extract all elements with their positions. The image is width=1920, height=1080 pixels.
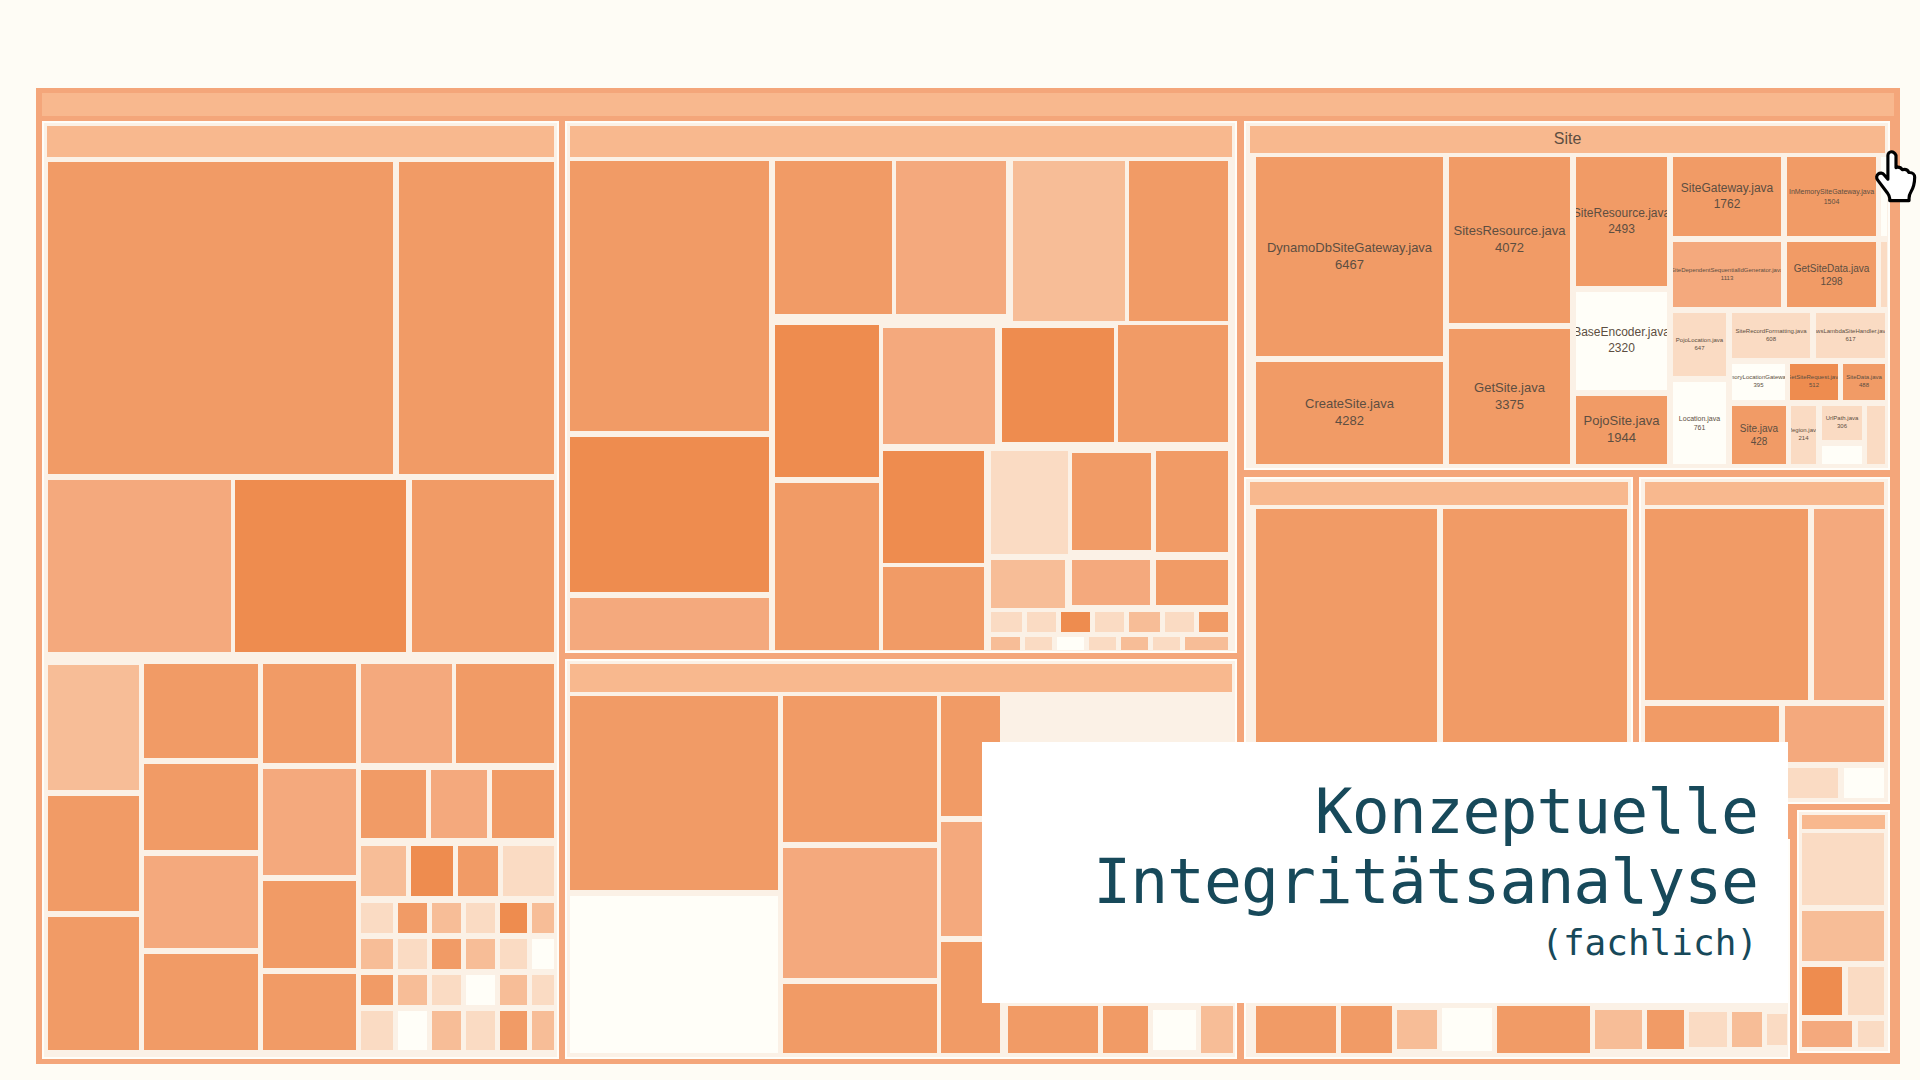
node-value: 617 (1845, 336, 1855, 344)
treemap-box[interactable] (1153, 637, 1180, 650)
treemap-box[interactable] (1103, 1006, 1148, 1053)
treemap-box[interactable] (1129, 161, 1228, 321)
treemap-box[interactable] (1647, 1010, 1684, 1049)
treemap-box[interactable] (1822, 446, 1862, 464)
treemap-box[interactable] (1008, 1006, 1098, 1053)
treemap-box[interactable] (775, 161, 892, 314)
node-value: 2320 (1608, 341, 1635, 357)
treemap-strip (1802, 815, 1885, 829)
treemap-box[interactable] (263, 769, 356, 875)
node-label: CreateSite.java (1305, 396, 1394, 413)
treemap-box[interactable] (492, 770, 554, 838)
treemap-box[interactable] (532, 975, 554, 1005)
treemap-box[interactable] (1802, 967, 1842, 1015)
treemap-box[interactable] (431, 770, 487, 838)
treemap-box[interactable] (1785, 768, 1838, 798)
treemap-box[interactable] (991, 451, 1068, 554)
treemap-box[interactable] (896, 161, 1006, 314)
treemap-box[interactable] (1844, 768, 1884, 798)
treemap-box[interactable] (1156, 451, 1228, 552)
node-dynamodbsitegateway-java[interactable]: DynamoDbSiteGateway.java6467 (1256, 157, 1443, 356)
node-label: UrlPath.java (1826, 415, 1859, 423)
treemap-box[interactable] (432, 1011, 461, 1050)
treemap-box[interactable] (991, 612, 1022, 632)
treemap-box[interactable] (1814, 509, 1884, 700)
node-label: PojoSite.java (1584, 413, 1660, 430)
treemap-box[interactable] (570, 696, 778, 890)
treemap-box[interactable] (775, 325, 879, 477)
node-siterecordformatting-java[interactable]: SiteRecordFormatting.java608 (1732, 313, 1810, 358)
treemap-box[interactable] (1397, 1010, 1437, 1049)
treemap-box[interactable] (783, 696, 937, 842)
treemap-box[interactable] (500, 1011, 527, 1050)
treemap-box[interactable] (399, 162, 554, 474)
node-value: 512 (1809, 382, 1819, 390)
treemap-box[interactable] (1057, 637, 1084, 650)
treemap-box[interactable] (144, 856, 258, 948)
treemap-box[interactable] (432, 939, 461, 969)
node-value: 214 (1798, 435, 1808, 443)
treemap-box[interactable] (532, 903, 554, 933)
treemap-box[interactable] (1027, 612, 1056, 632)
treemap-box[interactable] (1341, 1006, 1392, 1053)
node-getsitedata-java[interactable]: GetSiteData.java1298 (1787, 242, 1876, 307)
node-label: SitesResource.java (1454, 223, 1566, 240)
treemap-box[interactable] (48, 665, 139, 790)
node-label: AwsLambdaSiteHandler.java (1816, 328, 1885, 336)
treemap-box[interactable] (1089, 637, 1116, 650)
treemap-box[interactable] (361, 770, 426, 838)
node-label: GetSiteData.java (1794, 262, 1870, 275)
treemap-box[interactable] (361, 846, 406, 896)
treemap-box[interactable] (1118, 325, 1228, 442)
treemap-box[interactable] (1802, 1021, 1852, 1047)
treemap-box[interactable] (398, 975, 427, 1005)
node-awslambdasitehandler-java[interactable]: AwsLambdaSiteHandler.java617 (1816, 313, 1885, 358)
treemap-box[interactable] (1025, 637, 1052, 650)
node-label: InMemoryLocationGateway.java (1732, 374, 1785, 382)
treemap-box[interactable] (1072, 453, 1151, 550)
treemap-box[interactable] (263, 974, 356, 1050)
node-location-java[interactable]: Location.java761 (1673, 382, 1726, 464)
title-line-1: Konzeptuelle (982, 777, 1758, 847)
node-sitedata-java[interactable]: SiteData.java488 (1843, 364, 1885, 400)
treemap-box[interactable] (412, 480, 554, 652)
node-inmemorylocationgateway-java[interactable]: InMemoryLocationGateway.java395 (1732, 364, 1785, 400)
node-value: 608 (1766, 336, 1776, 344)
node-label: DynamoDbSiteGateway.java (1267, 240, 1432, 257)
node-sitedependentsequentialidgenerator-java[interactable]: SiteDependentSequentialIdGenerator.java1… (1673, 242, 1781, 307)
node-label: SiteRecordFormatting.java (1735, 328, 1806, 336)
treemap-box[interactable] (1072, 560, 1150, 605)
treemap-box[interactable] (532, 939, 554, 969)
treemap-box[interactable] (1881, 242, 1887, 307)
node-value: 3375 (1495, 397, 1524, 414)
treemap-box[interactable] (466, 939, 495, 969)
node-label: InMemorySiteGateway.java (1789, 187, 1874, 196)
treemap-box[interactable] (500, 903, 527, 933)
treemap-box[interactable] (398, 939, 427, 969)
node-label: PojoLocation.java (1676, 337, 1723, 345)
title-line-3: (fachlich) (982, 917, 1758, 969)
treemap-box[interactable] (883, 328, 995, 444)
node-value: 395 (1753, 382, 1763, 390)
treemap-box[interactable] (466, 1011, 495, 1050)
treemap-box[interactable] (532, 1011, 554, 1050)
hand-pointer-cursor-icon (1869, 145, 1920, 221)
treemap-box[interactable] (432, 903, 461, 933)
node-label: Location.java (1679, 414, 1720, 423)
treemap-box[interactable] (991, 637, 1020, 650)
treemap-box[interactable] (361, 1011, 393, 1050)
treemap-box[interactable] (144, 664, 258, 758)
treemap-box[interactable] (466, 903, 495, 933)
node-label: Site.java (1740, 422, 1778, 435)
node-value: 4282 (1335, 413, 1364, 430)
treemap-box[interactable] (570, 161, 769, 431)
treemap-box[interactable] (1595, 1010, 1642, 1049)
treemap-box[interactable] (991, 560, 1065, 608)
node-label: SiteResource.java (1576, 206, 1667, 222)
node-baseencoder-java[interactable]: BaseEncoder.java2320 (1576, 292, 1667, 390)
node-value: 488 (1859, 382, 1869, 390)
treemap-box[interactable] (783, 848, 937, 978)
treemap-box[interactable] (48, 162, 393, 474)
node-value: 1298 (1820, 275, 1842, 288)
treemap-box[interactable] (1443, 509, 1627, 749)
treemap-box[interactable] (1785, 706, 1884, 762)
node-label: GetSite.java (1474, 380, 1545, 397)
treemap-box[interactable] (411, 846, 453, 896)
treemap-box[interactable] (570, 896, 778, 1053)
node-value: 428 (1751, 435, 1768, 448)
treemap-box[interactable] (1802, 911, 1884, 961)
treemap-box[interactable] (48, 480, 231, 652)
treemap-box[interactable] (458, 846, 498, 896)
node-label: GetSiteRequest.java (1790, 374, 1838, 382)
node-value: 306 (1837, 423, 1847, 431)
treemap-strip (47, 126, 554, 157)
treemap-box[interactable] (1185, 637, 1228, 650)
node-value: 4072 (1495, 240, 1524, 257)
treemap-box[interactable] (1848, 967, 1884, 1015)
treemap-strip (42, 93, 1894, 116)
treemap-box[interactable] (48, 796, 139, 911)
treemap-box[interactable] (1165, 612, 1194, 632)
node-pojosite-java[interactable]: PojoSite.java1944 (1576, 396, 1667, 464)
node-value: 761 (1694, 423, 1706, 432)
treemap-box[interactable] (1256, 1006, 1336, 1053)
treemap-box[interactable] (883, 567, 984, 650)
treemap-box[interactable] (1199, 612, 1228, 632)
node-region-java[interactable]: Region.java214 (1791, 406, 1816, 464)
treemap-strip (570, 664, 1232, 692)
treemap-box[interactable] (1802, 833, 1884, 905)
treemap-box[interactable] (235, 480, 406, 652)
treemap-box[interactable] (1061, 612, 1090, 632)
treemap-box[interactable] (570, 598, 769, 650)
node-label: Site (1554, 129, 1582, 150)
node-label: SiteGateway.java (1681, 181, 1774, 197)
treemap-box[interactable] (883, 451, 984, 563)
treemap-box[interactable] (1095, 612, 1124, 632)
treemap-box[interactable] (1156, 560, 1228, 605)
treemap-box[interactable] (1013, 161, 1125, 321)
treemap-box[interactable] (1732, 1012, 1762, 1047)
node-value: 6467 (1335, 257, 1364, 274)
node-site-java[interactable]: Site.java428 (1732, 406, 1786, 464)
node-sitegateway-java[interactable]: SiteGateway.java1762 (1673, 157, 1781, 236)
node-value: 1944 (1607, 430, 1636, 447)
treemap-box[interactable] (361, 975, 393, 1005)
node-value: 647 (1694, 345, 1704, 353)
node-value: 1504 (1824, 197, 1840, 206)
treemap-box[interactable] (263, 881, 356, 968)
treemap-canvas: SiteDynamoDbSiteGateway.java6467CreateSi… (0, 0, 1920, 1080)
treemap-box[interactable] (1497, 1006, 1590, 1053)
node-value: 1113 (1721, 275, 1733, 283)
node-urlpath-java[interactable]: UrlPath.java306 (1822, 406, 1862, 440)
node-getsite-java[interactable]: GetSite.java3375 (1449, 329, 1570, 464)
node-site[interactable]: Site (1250, 126, 1885, 153)
node-inmemorysitegateway-java[interactable]: InMemorySiteGateway.java1504 (1787, 157, 1876, 236)
treemap-box[interactable] (1645, 509, 1808, 700)
node-label: SiteDependentSequentialIdGenerator.java (1673, 267, 1781, 275)
node-label: SiteData.java (1846, 374, 1882, 382)
treemap-strip (1250, 482, 1628, 505)
treemap-box[interactable] (361, 903, 393, 933)
treemap-box[interactable] (466, 975, 495, 1005)
node-label: Region.java (1791, 427, 1816, 435)
treemap-strip (570, 126, 1232, 157)
treemap-box[interactable] (144, 954, 258, 1050)
treemap-box[interactable] (398, 903, 427, 933)
treemap-box[interactable] (361, 664, 452, 763)
treemap-box[interactable] (144, 764, 258, 850)
title-overlay: Konzeptuelle Integritätsanalyse (fachlic… (982, 742, 1788, 1003)
node-value: 1762 (1714, 197, 1741, 213)
treemap-strip (1645, 482, 1884, 505)
treemap-box[interactable] (775, 483, 879, 650)
treemap-box[interactable] (1201, 1006, 1233, 1053)
treemap-box[interactable] (1121, 637, 1148, 650)
title-line-2: Integritätsanalyse (982, 847, 1758, 917)
treemap-box[interactable] (503, 846, 554, 896)
treemap-box[interactable] (1002, 328, 1114, 442)
treemap-box[interactable] (570, 437, 769, 592)
treemap-box[interactable] (1129, 612, 1160, 632)
treemap-box[interactable] (361, 939, 393, 969)
treemap-box[interactable] (432, 975, 461, 1005)
treemap-box[interactable] (783, 984, 937, 1053)
treemap-box[interactable] (456, 664, 554, 763)
treemap-box[interactable] (263, 664, 356, 763)
node-createsite-java[interactable]: CreateSite.java4282 (1256, 362, 1443, 464)
treemap-box[interactable] (398, 1011, 427, 1050)
node-siteresource-java[interactable]: SiteResource.java2493 (1576, 157, 1667, 286)
treemap-box[interactable] (1153, 1010, 1196, 1050)
node-pojolocation-java[interactable]: PojoLocation.java647 (1673, 313, 1726, 376)
treemap-box[interactable] (1858, 1021, 1884, 1047)
treemap-box[interactable] (500, 975, 527, 1005)
treemap-box[interactable] (1256, 509, 1437, 749)
node-label: BaseEncoder.java (1576, 325, 1667, 341)
node-getsiterequest-java[interactable]: GetSiteRequest.java512 (1790, 364, 1838, 400)
treemap-box[interactable] (1867, 406, 1885, 464)
treemap-box[interactable] (500, 939, 527, 969)
treemap-box[interactable] (48, 917, 139, 1050)
treemap-box[interactable] (1442, 1008, 1492, 1051)
treemap-box[interactable] (1689, 1012, 1727, 1047)
treemap-box[interactable] (1767, 1014, 1787, 1045)
node-value: 2493 (1608, 222, 1635, 238)
node-sitesresource-java[interactable]: SitesResource.java4072 (1449, 157, 1570, 323)
